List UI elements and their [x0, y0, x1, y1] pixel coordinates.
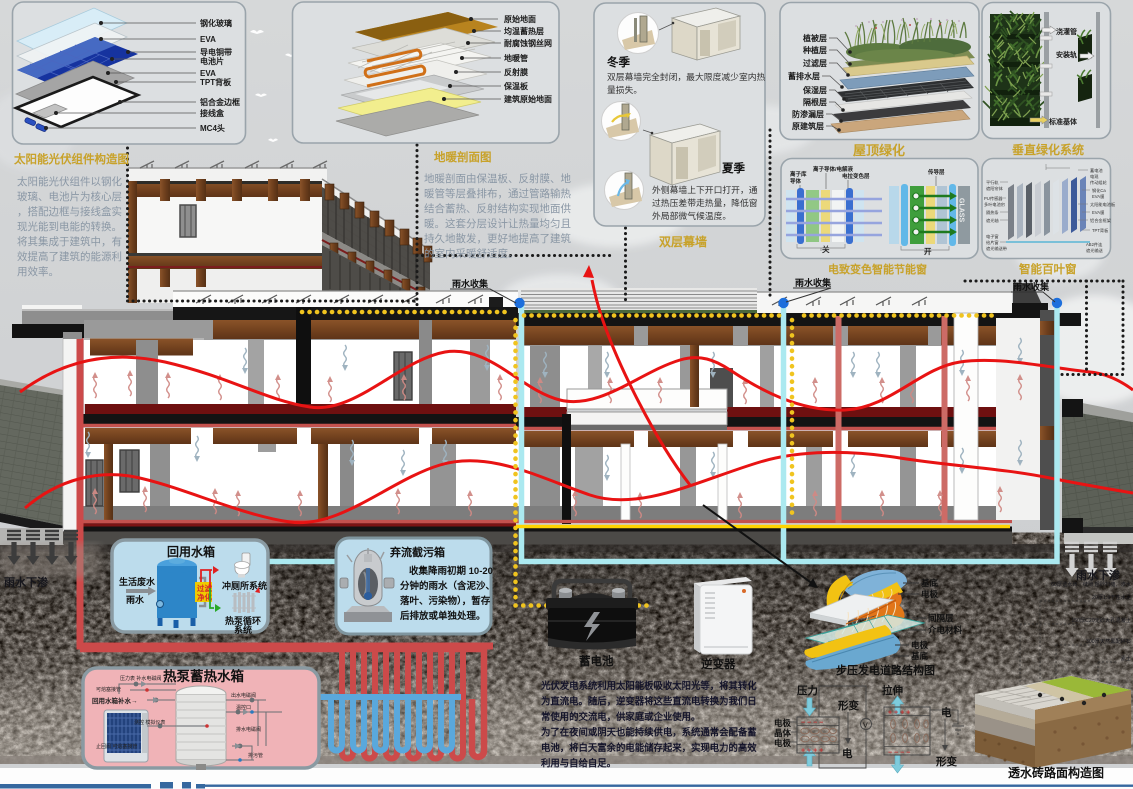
svg-text:遮光输送带: 遮光输送带	[986, 245, 1007, 252]
svg-text:保湿层: 保湿层	[802, 85, 827, 95]
svg-text:标准基体: 标准基体	[1048, 117, 1078, 126]
svg-text:150厚C20无砂大孔混凝土: 150厚C20无砂大孔混凝土	[1071, 616, 1131, 624]
svg-text:落叶、污染物），暂存: 落叶、污染物），暂存	[400, 595, 491, 607]
svg-text:− − − −: − − − −	[801, 720, 823, 727]
svg-text:遮光轴: 遮光轴	[986, 217, 999, 224]
svg-text:浇灌管: 浇灌管	[1056, 27, 1077, 36]
svg-text:电极: 电极	[774, 738, 792, 748]
svg-text:+ + + +: + + + +	[888, 710, 910, 717]
svg-text:压力表 补水电磁阀: 压力表 补水电磁阀	[120, 675, 161, 682]
svg-text:隔根层: 隔根层	[803, 97, 827, 107]
svg-text:蓄电池: 蓄电池	[1090, 167, 1103, 174]
svg-text:形变: 形变	[936, 755, 957, 768]
svg-text:离子库: 离子库	[790, 170, 807, 178]
svg-text:隔热条: 隔热条	[986, 209, 999, 216]
svg-text:现光能到电能的转换。: 现光能到电能的转换。	[17, 220, 122, 233]
svg-text:步压发电道路结构图: 步压发电道路结构图	[836, 663, 935, 677]
svg-text:双层幕墙: 双层幕墙	[659, 234, 707, 249]
svg-text:蓄电池: 蓄电池	[579, 654, 614, 668]
svg-text:建筑原始地面: 建筑原始地面	[503, 94, 552, 104]
svg-text:夏季: 夏季	[722, 161, 745, 175]
svg-text:持久地散发，更好地提高了建筑: 持久地散发，更好地提高了建筑	[424, 232, 571, 245]
svg-text:电观: 电观	[1090, 173, 1099, 180]
svg-text:均温蓄热层: 均温蓄热层	[504, 26, 544, 36]
svg-text:AB2件连: AB2件连	[1086, 241, 1103, 248]
svg-text:双层幕墙完全封闭，最大限度减少室内热: 双层幕墙完全封闭，最大限度减少室内热	[607, 71, 766, 82]
svg-text:玻璃、电池片为核心层: 玻璃、电池片为核心层	[17, 190, 122, 203]
svg-text:安装轨: 安装轨	[1056, 50, 1077, 59]
svg-text:植被层: 植被层	[802, 33, 827, 43]
svg-text:电致变色智能节能窗: 电致变色智能节能窗	[828, 262, 927, 276]
svg-text:MC4头: MC4头	[200, 123, 225, 133]
svg-text:屋顶绿化: 屋顶绿化	[853, 143, 905, 158]
svg-text:太阳能光伏组件以钢化: 太阳能光伏组件以钢化	[17, 175, 122, 188]
svg-text:为了在夜间或阴天也能持续供电，系统通常会配备蓄: 为了在夜间或阴天也能持续供电，系统通常会配备蓄	[541, 727, 757, 738]
svg-text:回用水箱补水→: 回用水箱补水→	[92, 696, 138, 705]
svg-text:多叶电池帘: 多叶电池帘	[984, 201, 1005, 208]
svg-text:外侧幕墙上下开口打开，通: 外侧幕墙上下开口打开，通	[652, 184, 758, 195]
svg-text:GLASS: GLASS	[773, 216, 780, 240]
svg-text:外局部微气候温度。: 外局部微气候温度。	[652, 210, 731, 221]
svg-text:雨水收集: 雨水收集	[1013, 281, 1050, 292]
svg-text:智能百叶窗: 智能百叶窗	[1019, 262, 1077, 276]
svg-text:− − − −: − − − −	[888, 750, 910, 757]
svg-text:可熔塞接管: 可熔塞接管	[96, 686, 121, 693]
svg-text:电极: 电极	[921, 589, 939, 599]
svg-text:传动组轮: 传动组轮	[1090, 179, 1108, 186]
svg-text:EVA: EVA	[200, 35, 216, 44]
svg-text:GLASS: GLASS	[958, 198, 965, 222]
svg-text:生活废水: 生活废水	[119, 576, 156, 587]
svg-text:为直流电。随后，逆变器将这些直流电转换为我们日: 为直流电。随后，逆变器将这些直流电转换为我们日	[541, 696, 757, 707]
svg-text:导电铜带: 导电铜带	[200, 47, 232, 57]
svg-text:原建筑层: 原建筑层	[792, 121, 824, 131]
svg-text:基底: 基底	[910, 651, 929, 661]
svg-text:电极: 电极	[911, 640, 929, 650]
svg-text:雨水: 雨水	[126, 594, 145, 605]
svg-text:出水电磁阀: 出水电磁阀	[231, 692, 256, 699]
svg-text:垂直绿化系统: 垂直绿化系统	[1012, 142, 1084, 157]
svg-text:间隔层: 间隔层	[928, 613, 954, 623]
svg-text:的室内采暖舒适度。: 的室内采暖舒适度。	[424, 247, 519, 260]
svg-text:冬季: 冬季	[607, 55, 630, 69]
svg-text:60厚透水砖、缝隙 粗砂扫缝、渗水: 60厚透水砖、缝隙 粗砂扫缝、渗水	[1051, 580, 1132, 588]
svg-text:300厚天然黑配碎石: 300厚天然黑配碎石	[1086, 637, 1131, 645]
svg-text:TPT背板: TPT背板	[1092, 227, 1109, 234]
svg-text:关: 关	[822, 244, 830, 254]
svg-text:+ + + +: + + + +	[801, 748, 823, 755]
svg-text:，搭配边框与接线盒实: ，搭配边框与接线盒实	[17, 205, 122, 218]
svg-text:V: V	[863, 723, 868, 730]
svg-text:钢化Ca: 钢化Ca	[1092, 187, 1106, 194]
svg-text:分钟的雨水（含泥沙、: 分钟的雨水（含泥沙、	[400, 580, 495, 592]
svg-text:过热压差带走热量，降低窗: 过热压差带走热量，降低窗	[652, 197, 758, 208]
svg-text:防渗漏层: 防渗漏层	[792, 109, 824, 119]
svg-text:系统: 系统	[234, 624, 252, 635]
svg-text:常使用的交流电，供家庭或企业使用。: 常使用的交流电，供家庭或企业使用。	[541, 711, 700, 722]
svg-text:平行轨: 平行轨	[986, 179, 999, 186]
svg-text:光伏发电系统利用太阳能板吸收太阳光等，将其转化: 光伏发电系统利用太阳能板吸收太阳光等，将其转化	[540, 680, 757, 691]
svg-text:铝合金边框: 铝合金边框	[200, 97, 240, 107]
svg-text:遮阳帘体: 遮阳帘体	[986, 185, 1004, 192]
svg-text:铝合金框架: 铝合金框架	[1090, 217, 1111, 224]
svg-text:压力: 压力	[797, 684, 818, 697]
svg-text:形变: 形变	[838, 699, 859, 712]
svg-text:效提高了建筑的能源利: 效提高了建筑的能源利	[17, 250, 122, 263]
svg-text:EVA: EVA	[200, 69, 216, 78]
svg-text:基底: 基底	[920, 578, 939, 588]
svg-text:遮光输送: 遮光输送	[1086, 247, 1104, 254]
svg-text:蓄排水层: 蓄排水层	[788, 71, 820, 81]
svg-text:拉伸: 拉伸	[882, 684, 903, 697]
svg-text:地暖剖面图: 地暖剖面图	[434, 150, 492, 164]
svg-text:电拉变色层: 电拉变色层	[842, 172, 870, 180]
svg-text:晶体: 晶体	[774, 728, 792, 738]
svg-text:电子窗: 电子窗	[986, 233, 999, 240]
svg-text:介电材料: 介电材料	[927, 625, 963, 635]
svg-text:透水砖路面构造图: 透水砖路面构造图	[1008, 765, 1104, 780]
svg-text:后排放或单独处理。: 后排放或单独处理。	[400, 610, 486, 622]
svg-text:原始地面: 原始地面	[504, 14, 536, 24]
svg-text:EVA膜: EVA膜	[1092, 193, 1104, 200]
svg-text:离子导体/电解液: 离子导体/电解液	[813, 165, 854, 173]
svg-text:排污管: 排污管	[248, 752, 263, 759]
svg-text:暖管等层叠排布，通过管路输热: 暖管等层叠排布，通过管路输热	[424, 187, 571, 200]
svg-text:电池片: 电池片	[200, 56, 224, 66]
svg-text:地暖管: 地暖管	[504, 53, 528, 63]
svg-text:太阳能光伏组件构造图: 太阳能光伏组件构造图	[13, 152, 129, 166]
svg-text:回用水箱: 回用水箱	[167, 544, 215, 559]
svg-text:雨水收集: 雨水收集	[452, 278, 489, 289]
svg-text:利用与自给自足。: 利用与自给自足。	[541, 758, 616, 769]
svg-text:结合蓄热、反射结构实现地面供: 结合蓄热、反射结构实现地面供	[424, 202, 571, 215]
svg-text:止回阀 可熔塞接管: 止回阀 可熔塞接管	[96, 743, 137, 750]
svg-text:给片窗: 给片窗	[986, 239, 999, 246]
svg-text:TPT背板: TPT背板	[200, 77, 232, 87]
svg-text:电: 电	[842, 747, 853, 760]
svg-text:量损失。: 量损失。	[607, 84, 642, 95]
svg-text:电极: 电极	[774, 718, 792, 728]
svg-text:收集降雨初期 10-20: 收集降雨初期 10-20	[409, 565, 493, 577]
svg-text:暖。这套分层设计让热量均匀且: 暖。这套分层设计让热量均匀且	[424, 217, 571, 230]
svg-text:弃流截污箱: 弃流截污箱	[389, 545, 445, 559]
svg-text:耐腐蚀钢丝网: 耐腐蚀钢丝网	[504, 38, 552, 48]
svg-text:雨水收集: 雨水收集	[795, 277, 832, 288]
svg-text:种植层: 种植层	[802, 45, 827, 55]
svg-text:导体: 导体	[790, 177, 802, 185]
svg-text:接线盒: 接线盒	[200, 108, 225, 118]
svg-text:电: 电	[941, 706, 952, 719]
svg-text:地暖剖面由保温板、反射膜、地: 地暖剖面由保温板、反射膜、地	[424, 172, 571, 185]
svg-text:用效率。: 用效率。	[17, 265, 59, 278]
svg-text:排水电磁阀: 排水电磁阀	[236, 726, 261, 733]
svg-text:测控 模拟仪表: 测控 模拟仪表	[134, 719, 165, 726]
svg-text:钢化玻璃: 钢化玻璃	[200, 18, 232, 28]
svg-text:雨水下渗: 雨水下渗	[1076, 568, 1121, 582]
svg-text:冲厕所系统: 冲厕所系统	[222, 580, 267, 591]
svg-text:PU传感器: PU传感器	[984, 195, 1003, 202]
svg-text:反射膜: 反射膜	[504, 67, 528, 77]
svg-text:素土: 素土	[1121, 654, 1131, 662]
svg-text:热泵蓄热水箱: 热泵蓄热水箱	[163, 668, 244, 684]
svg-text:20厚1:6干性水泥: 20厚1:6干性水泥	[1092, 593, 1131, 601]
svg-text:逆变器: 逆变器	[701, 657, 736, 671]
svg-text:EVA膜: EVA膜	[1092, 209, 1104, 216]
svg-text:过滤层: 过滤层	[803, 58, 827, 68]
svg-text:保温板: 保温板	[503, 81, 529, 91]
svg-text:电池，将白天富余的电能储存起来，实现电力的高效: 电池，将白天富余的电能储存起来，实现电力的高效	[541, 742, 757, 753]
svg-text:雨水下渗: 雨水下渗	[4, 575, 49, 589]
svg-text:将其集成于建筑中，有: 将其集成于建筑中，有	[17, 235, 122, 248]
svg-text:传导层: 传导层	[927, 168, 945, 176]
svg-text:太阳能电池板: 太阳能电池板	[1090, 201, 1116, 208]
